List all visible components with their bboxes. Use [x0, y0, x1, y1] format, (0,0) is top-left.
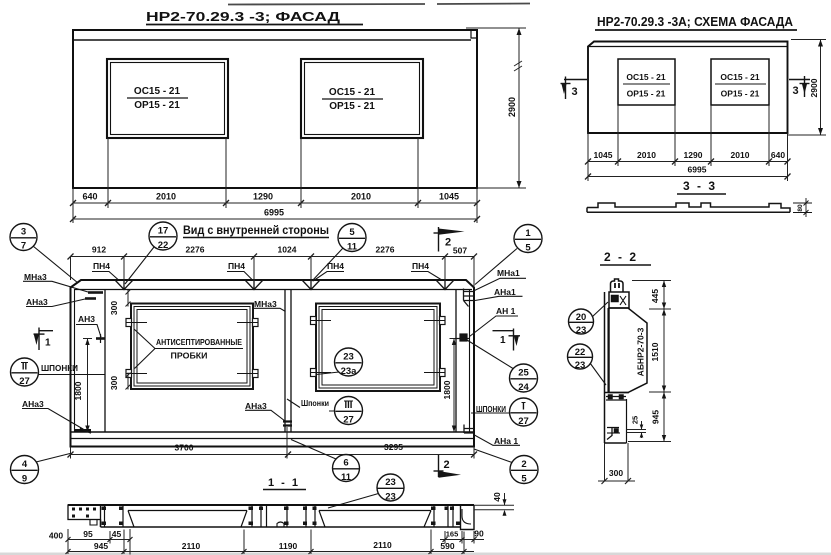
svg-text:1290: 1290: [253, 192, 273, 202]
svg-text:НР2-70.29.3 -3А; СХЕМА ФАСАДА: НР2-70.29.3 -3А; СХЕМА ФАСАДА: [597, 15, 793, 29]
svg-text:5: 5: [521, 474, 527, 485]
svg-text:40: 40: [492, 492, 502, 502]
svg-text:ШПОНКИ: ШПОНКИ: [41, 363, 78, 373]
svg-text:5: 5: [349, 227, 355, 238]
svg-text:945: 945: [651, 410, 661, 424]
svg-text:ПН4: ПН4: [412, 261, 429, 271]
svg-text:2010: 2010: [351, 192, 371, 202]
svg-text:640: 640: [771, 150, 785, 160]
svg-text:1800: 1800: [442, 380, 452, 399]
svg-text:25: 25: [631, 416, 640, 424]
svg-text:ПН4: ПН4: [228, 261, 245, 271]
svg-text:1024: 1024: [278, 245, 297, 255]
svg-text:2: 2: [521, 459, 526, 470]
svg-text:2110: 2110: [373, 540, 392, 550]
svg-text:3 - 3: 3 - 3: [683, 179, 717, 193]
svg-text:11: 11: [347, 242, 358, 253]
svg-text:23: 23: [343, 352, 354, 363]
svg-text:Шпонки: Шпонки: [301, 398, 329, 408]
svg-text:АНа1: АНа1: [494, 287, 516, 297]
svg-text:90: 90: [474, 529, 484, 539]
svg-text:Вид с внутренней стороны: Вид с внутренней стороны: [183, 225, 329, 237]
svg-text:1: 1: [45, 338, 51, 349]
svg-text:590: 590: [440, 541, 454, 551]
svg-text:АНа 1: АНа 1: [494, 436, 518, 446]
svg-text:1: 1: [500, 335, 506, 346]
svg-text:ОР15 - 21: ОР15 - 21: [329, 101, 375, 112]
svg-text:1045: 1045: [439, 192, 459, 202]
svg-text:ОС15 - 21: ОС15 - 21: [329, 87, 376, 98]
svg-text:3: 3: [792, 85, 798, 97]
svg-text:23: 23: [575, 360, 586, 371]
svg-text:6995: 6995: [688, 165, 707, 175]
svg-text:1800: 1800: [73, 381, 83, 400]
svg-text:6995: 6995: [264, 208, 284, 218]
svg-text:ОС15 - 21: ОС15 - 21: [626, 72, 665, 82]
svg-text:23а: 23а: [341, 366, 358, 377]
svg-text:АБНР2-70-3: АБНР2-70-3: [636, 327, 646, 376]
svg-text:МНа1: МНа1: [497, 268, 520, 278]
svg-text:445: 445: [650, 289, 660, 303]
svg-text:МНа3: МНа3: [254, 299, 277, 309]
svg-text:2 - 2: 2 - 2: [604, 250, 638, 264]
svg-text:1510: 1510: [650, 342, 660, 361]
svg-text:640: 640: [82, 192, 97, 202]
svg-text:ОР15 - 21: ОР15 - 21: [627, 89, 666, 99]
svg-text:II: II: [22, 362, 27, 373]
svg-text:23: 23: [385, 477, 396, 488]
svg-text:300: 300: [109, 301, 119, 315]
svg-text:6: 6: [343, 458, 348, 469]
svg-text:I: I: [522, 402, 525, 413]
svg-text:III: III: [345, 400, 353, 411]
svg-text:95: 95: [83, 529, 93, 539]
svg-text:2010: 2010: [156, 192, 176, 202]
svg-text:2900: 2900: [507, 97, 517, 117]
svg-text:20: 20: [576, 312, 587, 323]
svg-text:3: 3: [571, 86, 577, 98]
svg-text:3700: 3700: [175, 443, 194, 453]
svg-text:НР2-70.29.3 -3; ФАСАД: НР2-70.29.3 -3; ФАСАД: [146, 9, 341, 24]
svg-text:2: 2: [445, 237, 451, 249]
svg-text:400: 400: [49, 531, 63, 541]
svg-text:2: 2: [444, 459, 450, 471]
svg-text:27: 27: [518, 416, 529, 427]
svg-text:ОР15 - 21: ОР15 - 21: [721, 89, 760, 99]
svg-text:165: 165: [446, 530, 459, 539]
svg-text:27: 27: [19, 376, 30, 387]
svg-text:80: 80: [797, 204, 804, 212]
svg-text:1290: 1290: [684, 150, 703, 160]
svg-text:27: 27: [343, 415, 354, 426]
svg-text:ОС15 - 21: ОС15 - 21: [134, 86, 181, 97]
svg-text:2276: 2276: [376, 245, 395, 255]
svg-text:300: 300: [109, 376, 119, 390]
svg-text:АНа3: АНа3: [26, 297, 48, 307]
svg-text:1190: 1190: [279, 541, 298, 551]
svg-text:2900: 2900: [809, 78, 819, 97]
svg-text:3: 3: [21, 227, 26, 238]
svg-text:ОС15 - 21: ОС15 - 21: [720, 72, 759, 82]
svg-text:22: 22: [158, 240, 169, 251]
svg-text:2010: 2010: [731, 150, 750, 160]
svg-text:ОР15 - 21: ОР15 - 21: [134, 100, 180, 111]
svg-text:2010: 2010: [637, 150, 656, 160]
svg-text:17: 17: [158, 226, 169, 237]
svg-text:АНа3: АНа3: [22, 399, 44, 409]
svg-text:23: 23: [576, 325, 587, 336]
svg-text:ПРОБКИ: ПРОБКИ: [171, 351, 208, 361]
svg-text:22: 22: [575, 347, 586, 358]
svg-text:25: 25: [518, 368, 529, 379]
svg-text:45: 45: [112, 529, 122, 539]
svg-text:507: 507: [453, 246, 467, 256]
svg-text:4: 4: [22, 459, 28, 470]
svg-text:АНа3: АНа3: [245, 401, 267, 411]
svg-text:1045: 1045: [594, 150, 613, 160]
svg-text:9: 9: [22, 474, 27, 485]
svg-text:МНа3: МНа3: [24, 272, 47, 282]
svg-text:7: 7: [21, 241, 26, 252]
svg-text:945: 945: [94, 541, 108, 551]
svg-text:2276: 2276: [186, 245, 205, 255]
svg-text:АНТИСЕПТИРОВАННЫЕ: АНТИСЕПТИРОВАННЫЕ: [156, 337, 242, 347]
svg-text:300: 300: [609, 468, 623, 478]
svg-text:2110: 2110: [182, 541, 201, 551]
svg-text:АН 1: АН 1: [496, 306, 516, 316]
svg-text:24: 24: [518, 382, 529, 393]
svg-text:11: 11: [341, 472, 352, 483]
svg-text:3295: 3295: [384, 442, 403, 452]
svg-text:1 - 1: 1 - 1: [268, 477, 300, 489]
svg-text:912: 912: [92, 245, 106, 255]
svg-text:ПН4: ПН4: [93, 261, 110, 271]
svg-text:23: 23: [385, 492, 396, 503]
svg-text:АН3: АН3: [78, 314, 95, 324]
svg-text:5: 5: [525, 243, 531, 254]
svg-text:1: 1: [525, 228, 531, 239]
